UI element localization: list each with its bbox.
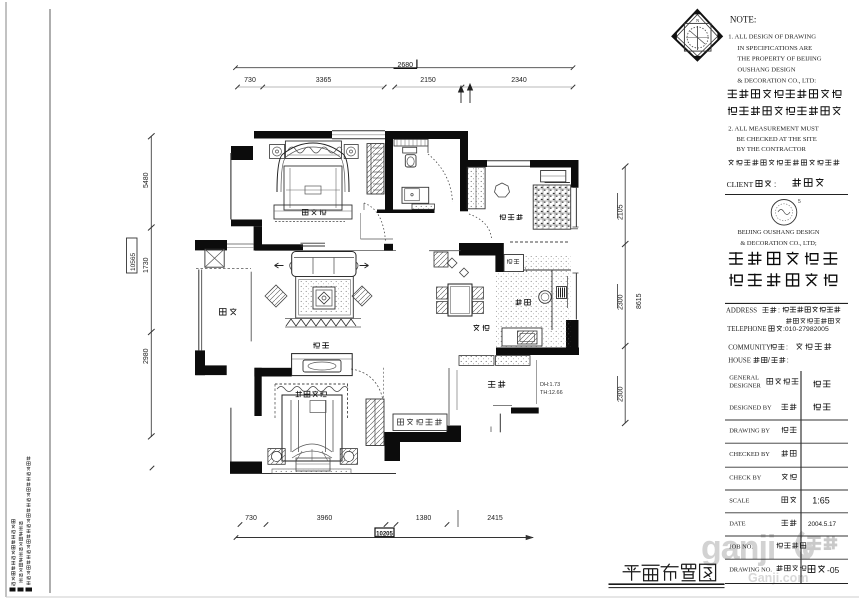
svg-text:DH:1.73: DH:1.73 <box>540 382 560 388</box>
svg-text:-05: -05 <box>827 565 840 575</box>
svg-text:GENERAL: GENERAL <box>729 375 759 382</box>
svg-text:1:65: 1:65 <box>812 496 830 506</box>
svg-text:CHECK BY: CHECK BY <box>729 475 762 482</box>
svg-text:COMMUNITY: COMMUNITY <box>728 345 771 352</box>
svg-text:DATE: DATE <box>729 521 745 528</box>
svg-text:2. ALL MEASUREMENT MUST: 2. ALL MEASUREMENT MUST <box>728 126 819 133</box>
svg-text:2980: 2980 <box>143 348 150 364</box>
svg-text:CLIENT: CLIENT <box>727 180 754 189</box>
svg-text:DESIGNER: DESIGNER <box>729 383 761 390</box>
svg-text:IN SPECIFICATIONS ARE: IN SPECIFICATIONS ARE <box>737 45 812 52</box>
svg-text:BE CHECKED AT THE SITE: BE CHECKED AT THE SITE <box>736 136 816 143</box>
svg-text:1730: 1730 <box>143 257 150 273</box>
svg-text:TELEPHONE: TELEPHONE <box>727 326 766 333</box>
svg-text:BY THE CONTRACTOR: BY THE CONTRACTOR <box>736 146 806 153</box>
svg-text:SCALE: SCALE <box>729 498 749 505</box>
svg-text:2150: 2150 <box>420 77 436 84</box>
svg-text:3960: 3960 <box>317 515 333 522</box>
svg-text:TH:12.66: TH:12.66 <box>540 390 563 396</box>
svg-text:1. ALL DESIGN OF DRAWING: 1. ALL DESIGN OF DRAWING <box>728 34 816 41</box>
svg-text:10565: 10565 <box>130 253 137 271</box>
svg-text:CHECKED BY: CHECKED BY <box>729 451 770 458</box>
svg-text:3365: 3365 <box>316 77 332 84</box>
svg-text:1380: 1380 <box>416 515 432 522</box>
svg-text:OUSHANG DESIGN: OUSHANG DESIGN <box>737 67 795 74</box>
svg-text:JOB NO.: JOB NO. <box>729 544 753 551</box>
svg-text:HOUSE: HOUSE <box>728 358 751 365</box>
svg-text:8615: 8615 <box>636 293 643 309</box>
svg-text:5: 5 <box>798 199 801 205</box>
svg-text::: : <box>774 180 776 189</box>
svg-text:2340: 2340 <box>511 77 527 84</box>
svg-text:& DECORATION CO., LTD;: & DECORATION CO., LTD; <box>740 240 816 247</box>
svg-text:NOTE:: NOTE: <box>730 15 757 25</box>
svg-text:DRAWING BY: DRAWING BY <box>729 428 770 435</box>
svg-text:THE PROPERTY OF BEIJING: THE PROPERTY OF BEIJING <box>737 56 821 63</box>
svg-text:DESIGNED BY: DESIGNED BY <box>729 405 772 412</box>
svg-text:5480: 5480 <box>143 172 150 188</box>
svg-text:10205: 10205 <box>376 531 393 537</box>
svg-text:2105: 2105 <box>618 204 625 220</box>
svg-text::: : <box>786 345 788 352</box>
svg-text::: : <box>778 308 780 315</box>
svg-text:2415: 2415 <box>487 515 503 522</box>
svg-text:2680: 2680 <box>398 62 414 69</box>
svg-text:730: 730 <box>244 77 256 84</box>
svg-text:/: / <box>768 358 770 365</box>
svg-text:BEIJING OUSHANG DESIGN: BEIJING OUSHANG DESIGN <box>737 229 819 236</box>
svg-text::: : <box>787 358 789 365</box>
svg-text:2004.5.17: 2004.5.17 <box>808 521 837 528</box>
svg-text:ADDRESS: ADDRESS <box>726 308 757 315</box>
svg-text::010-27982005: :010-27982005 <box>783 326 829 333</box>
svg-text:730: 730 <box>245 515 257 522</box>
svg-text:2300: 2300 <box>618 294 625 310</box>
svg-text:2300: 2300 <box>618 386 625 402</box>
svg-text:DRAWING NO.: DRAWING NO. <box>729 567 772 574</box>
svg-text:& DECORATION CO., LTD:: & DECORATION CO., LTD: <box>737 78 816 85</box>
